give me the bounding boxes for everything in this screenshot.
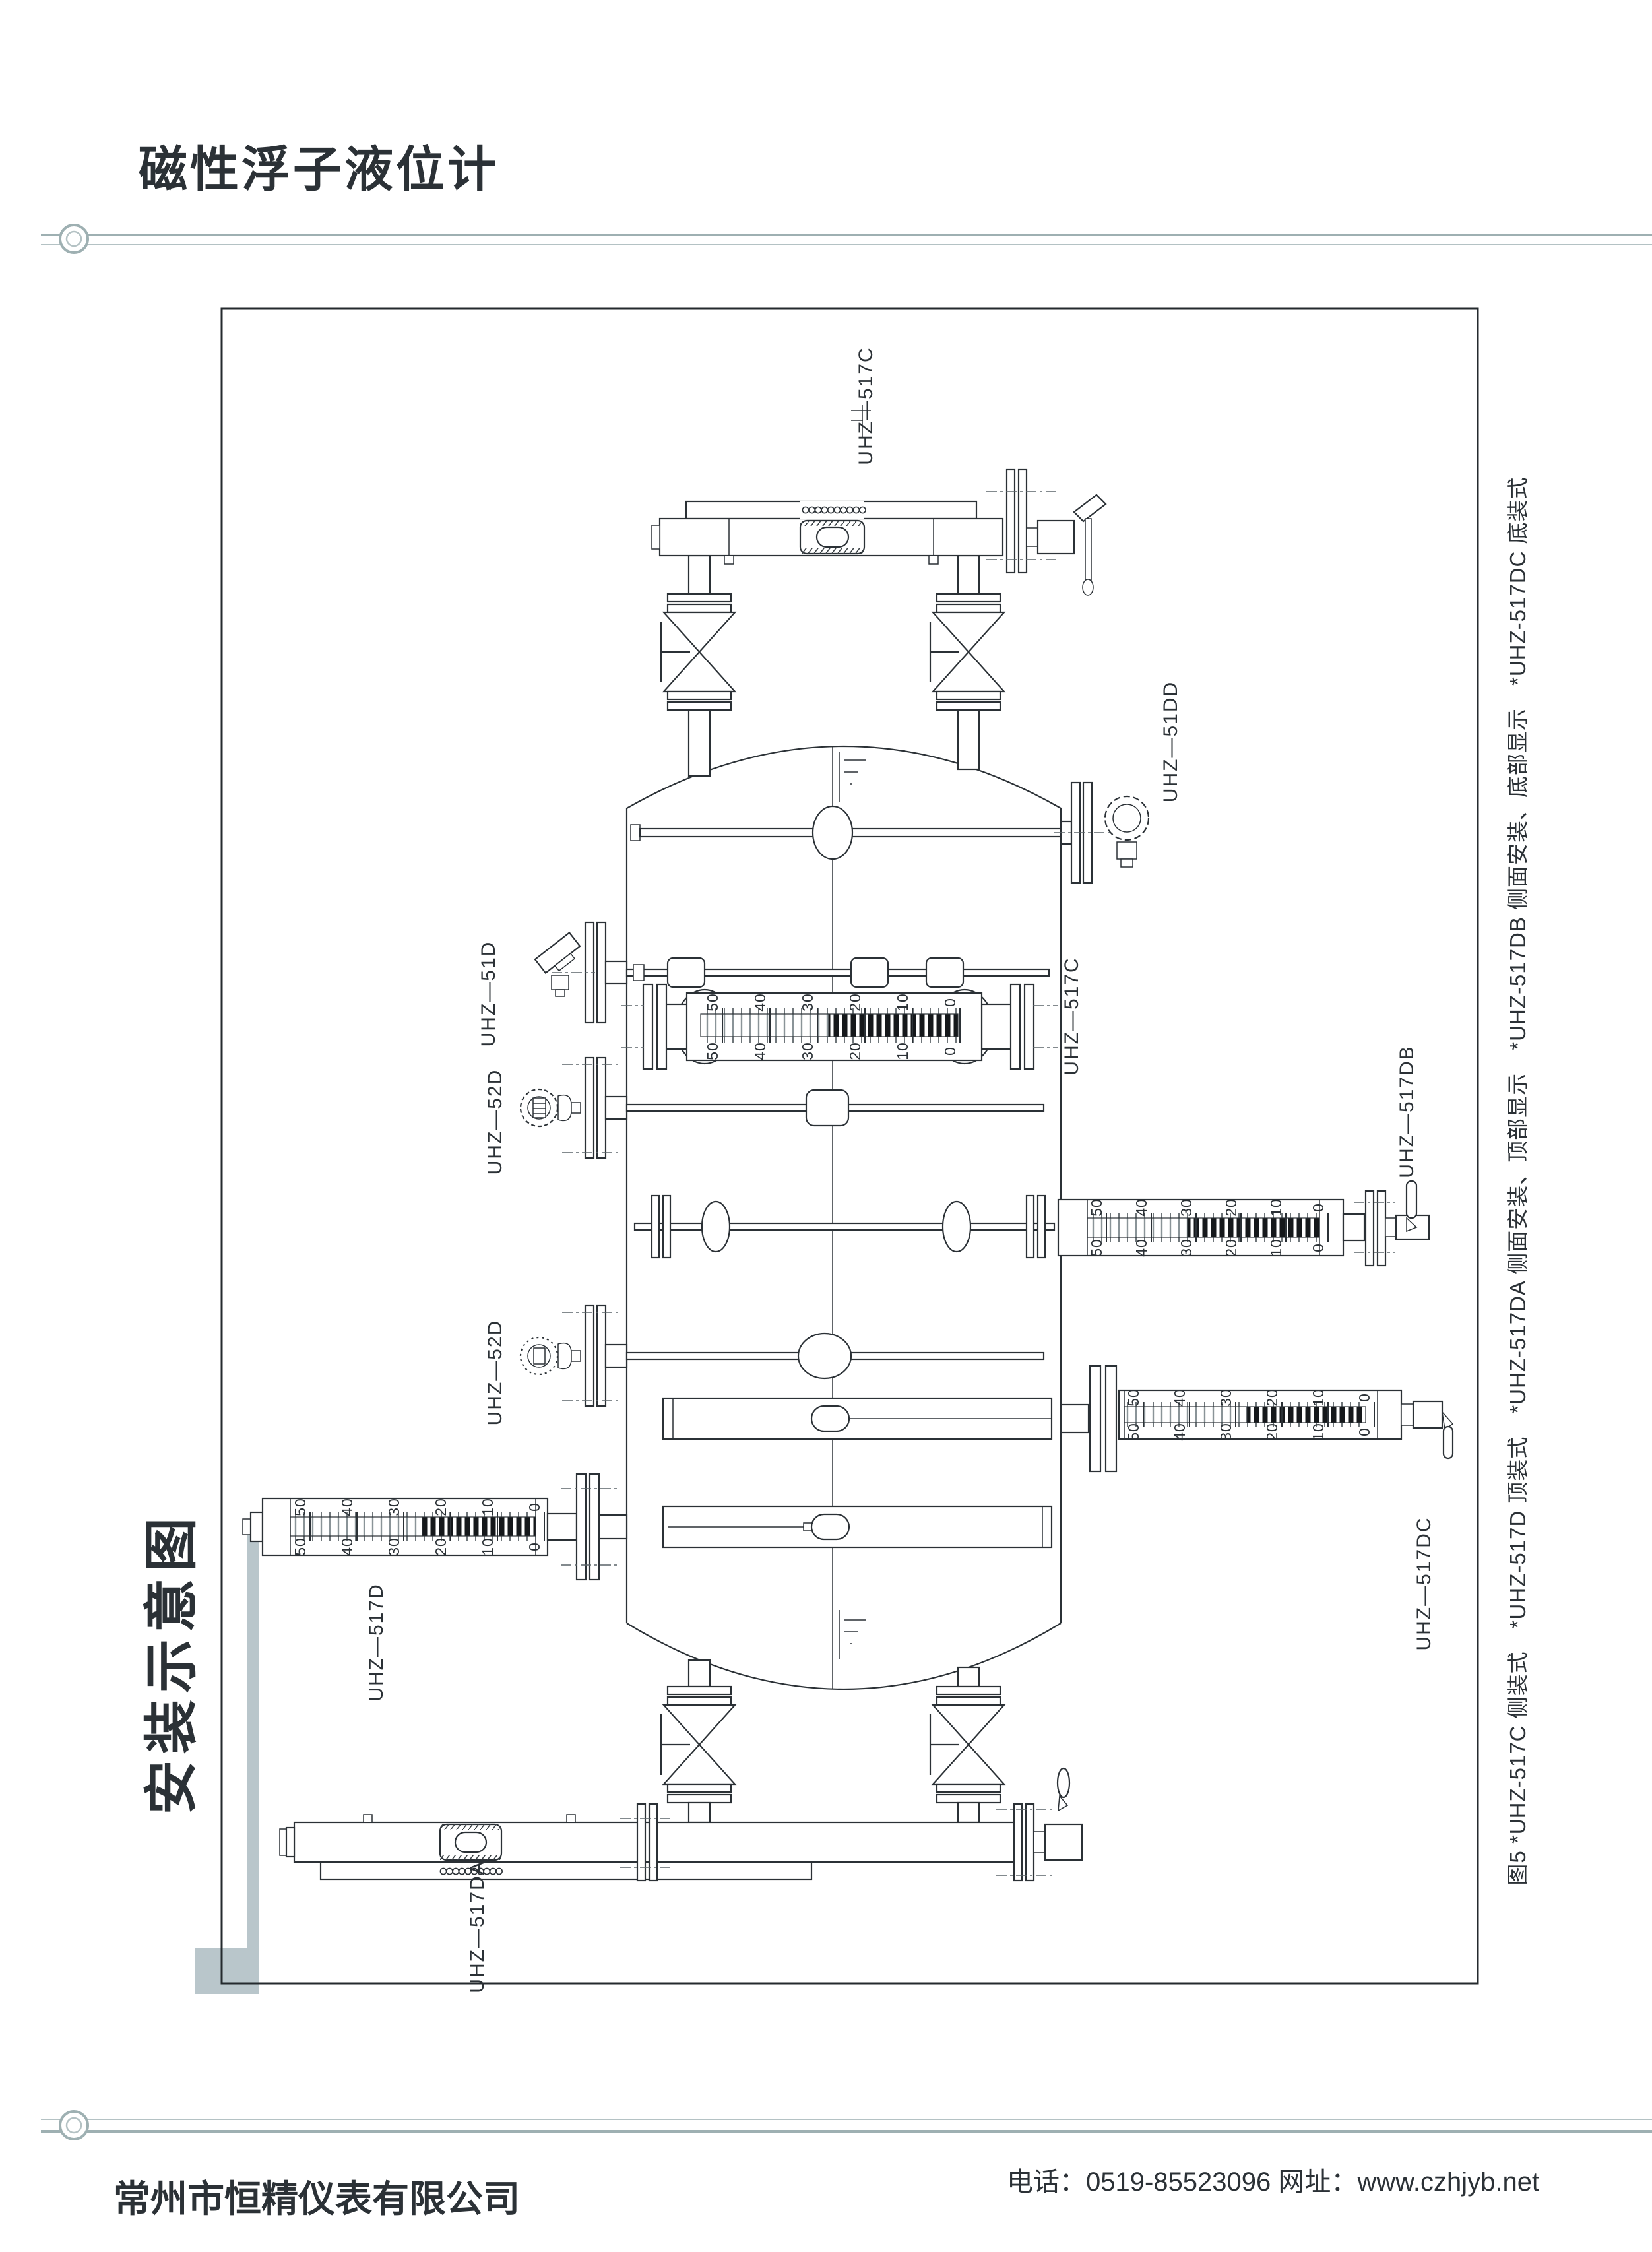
figure-caption: 图5 *UHZ-517C 侧装式 *UHZ-517D 顶装式 *UHZ-517D… [1506, 476, 1530, 1885]
rivet-dot [802, 507, 808, 513]
label-uhz-52d-2: UHZ—52D [484, 1320, 506, 1426]
valve-bottom-right [930, 1687, 1004, 1803]
scale-number: 0 [1310, 1243, 1327, 1252]
label-uhz-517da: UHZ—517DA [466, 1860, 488, 1993]
float-block-52d-1 [806, 1090, 848, 1126]
footer-rule [41, 2111, 1652, 2139]
label-uhz-51dd: UHZ—51DD [1160, 681, 1182, 802]
catalog-page: 磁性浮子液位计 安装示意图 [0, 0, 1652, 2252]
scale-number: 40 [1133, 1198, 1150, 1217]
scale-number: 0 [941, 998, 959, 1007]
scale-number: 0 [526, 1542, 543, 1551]
sensor-head-51d [535, 932, 584, 978]
label-uhz-51d: UHZ—51D [478, 941, 499, 1047]
rivet-dot [828, 507, 834, 513]
scale-number: 20 [1263, 1388, 1281, 1407]
valve-top-right [930, 594, 1004, 710]
float-window-top [800, 501, 866, 554]
rivet-dot [834, 507, 840, 513]
rivet-dot [453, 1868, 459, 1874]
rivet-dot [490, 1868, 496, 1874]
page-title: 磁性浮子液位计 [139, 142, 499, 197]
scale-number: 0 [1356, 1393, 1373, 1402]
instrument-uhz-51dd [631, 783, 1149, 883]
float-db-1 [702, 1202, 730, 1252]
drain-lever-da [1058, 1768, 1069, 1797]
scale-number: 20 [432, 1498, 449, 1516]
valve-lever-dc [1444, 1427, 1453, 1458]
rivet-dot [860, 507, 866, 513]
float-indicator [817, 527, 848, 547]
scale-number: 30 [1217, 1423, 1234, 1441]
scale-number: 30 [385, 1537, 402, 1556]
scale-number: 20 [1223, 1198, 1240, 1217]
float-1 [668, 958, 705, 987]
level-mark-top [839, 752, 866, 802]
float-3 [926, 958, 963, 987]
scale-number: 50 [1125, 1423, 1142, 1441]
scale-number: 30 [799, 993, 816, 1012]
float-db-2 [943, 1202, 970, 1252]
header-rule [41, 225, 1652, 253]
scale-number: 40 [1171, 1423, 1188, 1441]
instrument-uhz-517c-mid: 5050404030302020101000 [621, 984, 1058, 1069]
scale-number: 0 [1356, 1427, 1373, 1436]
rivet-dot [447, 1868, 453, 1874]
scale-number: 20 [846, 1042, 864, 1060]
rivet-dot [459, 1868, 465, 1874]
label-uhz-517c-mid: UHZ—517C [1061, 957, 1083, 1075]
rivet-dot [496, 1868, 502, 1874]
rivet-dot [853, 507, 859, 513]
scale-number: 10 [1310, 1388, 1327, 1407]
float-ball-52d-2 [798, 1334, 851, 1378]
footer-company: 常州市恒精仪表有限公司 [113, 2178, 520, 2220]
scale-number: 0 [526, 1502, 543, 1512]
rivet-dot [821, 507, 827, 513]
instrument-uhz-517da [280, 1660, 1082, 1881]
instrument-uhz-517dc: 5050404030302020101000 [663, 1366, 1453, 1471]
scale-number: 20 [846, 993, 864, 1012]
label-uhz-517dc: UHZ—517DC [1413, 1516, 1435, 1650]
label-uhz-517c-top: UHZ—517C [855, 346, 877, 465]
diagram-frame [222, 309, 1478, 1983]
float-indicator-da [455, 1832, 486, 1852]
scale-number: 30 [1178, 1198, 1195, 1217]
scale-number: 0 [941, 1046, 959, 1056]
float-2 [851, 958, 888, 987]
label-uhz-517d: UHZ—517D [365, 1583, 387, 1701]
rivet-dot [841, 507, 846, 513]
scale-number: 50 [1088, 1239, 1105, 1257]
scale-number: 50 [292, 1537, 309, 1556]
rivet-dot [815, 507, 821, 513]
flange-52d-1 [585, 1058, 606, 1158]
label-uhz-52d-1: UHZ—52D [484, 1069, 506, 1175]
scale-number: 20 [1263, 1423, 1281, 1441]
flange-52d-2 [585, 1306, 606, 1406]
level-mark-bottom [839, 1610, 866, 1659]
instrument-uhz-517db: 5050404030302020101000 [635, 1181, 1429, 1266]
scale-number: 30 [1217, 1388, 1234, 1407]
rivet-dot [440, 1868, 446, 1874]
rivet-dot [847, 507, 853, 513]
scale-number: 40 [751, 1042, 769, 1060]
drain-valve-lever [1074, 495, 1106, 521]
scale-number: 10 [894, 993, 911, 1012]
scale-number: 40 [338, 1537, 356, 1556]
sidebar-title: 安装示意图 [142, 1511, 202, 1815]
scale-number: 50 [1088, 1198, 1105, 1217]
scale-number: 20 [432, 1537, 449, 1556]
float-dc [811, 1406, 849, 1431]
flange-51d [585, 922, 606, 1023]
rivet-dot [809, 507, 815, 513]
instrument-uhz-517c-top [652, 405, 1106, 776]
scale-number: 50 [704, 993, 721, 1012]
scale-number: 10 [479, 1537, 496, 1556]
instrument-uhz-52d-2 [521, 1306, 1044, 1406]
scale-number: 50 [292, 1498, 309, 1516]
valve-top-left [661, 594, 735, 710]
scale-number: 10 [479, 1498, 496, 1516]
scale-number: 40 [751, 993, 769, 1012]
valve-bottom-left [661, 1687, 735, 1803]
scale-number: 10 [1310, 1423, 1327, 1441]
scale-number: 30 [1178, 1239, 1195, 1257]
sidebar-accent-bar [195, 1529, 259, 1994]
scale-number: 10 [894, 1042, 911, 1060]
scale-number: 40 [338, 1498, 356, 1516]
float-d [811, 1514, 849, 1539]
scale-number: 10 [1267, 1198, 1285, 1217]
float-ball [813, 806, 852, 859]
valve-lever-db [1407, 1181, 1416, 1218]
scale-number: 50 [704, 1042, 721, 1060]
scale-number: 30 [385, 1498, 402, 1516]
scale-number: 10 [1267, 1239, 1285, 1257]
scale-number: 20 [1223, 1239, 1240, 1257]
scale-number: 40 [1171, 1388, 1188, 1407]
instrument-uhz-517d: 5050404030302020101000 [243, 1474, 1052, 1580]
scale-number: 30 [799, 1042, 816, 1060]
instrument-uhz-52d-1 [521, 1058, 1044, 1158]
scale-number: 50 [1125, 1388, 1142, 1407]
scale-number: 0 [1310, 1203, 1327, 1212]
footer-contact: 电话：0519-85523096 网址：www.czhjyb.net [1007, 2168, 1539, 2197]
label-uhz-517db: UHZ—517DB [1396, 1045, 1418, 1178]
scale-number: 40 [1133, 1239, 1150, 1257]
